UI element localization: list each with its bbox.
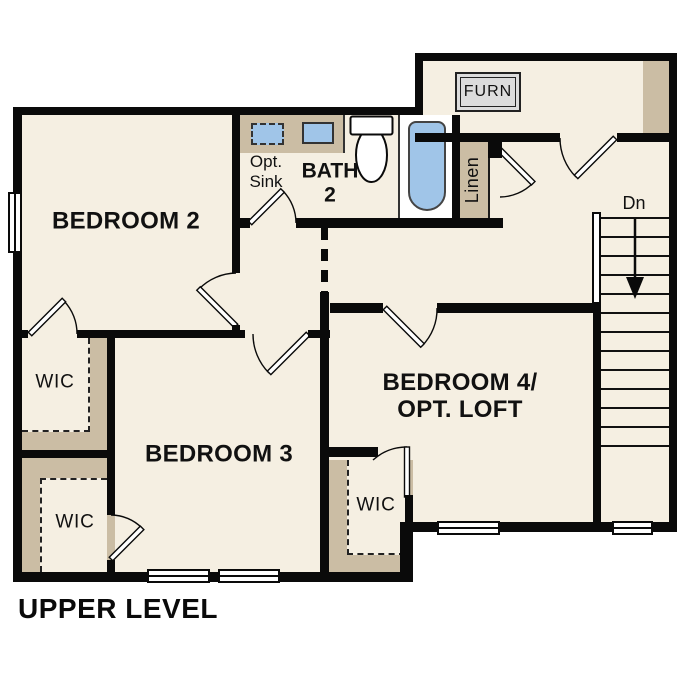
label-wic-bedroom3: WIC	[55, 511, 94, 532]
optional-sink	[251, 123, 284, 145]
wall-furnace-left	[415, 53, 423, 115]
room-label-bedroom4-line1: BEDROOM 4/	[382, 370, 537, 397]
tub-alcove	[398, 115, 452, 218]
room-label-bedroom3: BEDROOM 3	[145, 442, 293, 469]
window-bedroom2-left	[8, 192, 22, 253]
wall-linen-door-stub	[488, 140, 502, 158]
wall-bedroom3-bedroom4	[320, 292, 329, 577]
floor-plan: FURN	[0, 0, 687, 687]
wall-exterior-right	[669, 53, 677, 532]
wall-wic-divider	[13, 450, 115, 458]
wall-bedroom4-top-b	[437, 303, 593, 313]
wall-bedroom4-bottom-c	[653, 522, 677, 532]
wall-bath-bottom-a	[232, 218, 250, 228]
wall-exterior-bottom-b	[210, 572, 218, 582]
wall-wic-right-b	[107, 560, 115, 575]
label-wic-bedroom2: WIC	[35, 371, 74, 392]
room-label-bath2: BATH 2	[302, 159, 359, 206]
wall-bedroom2-right	[232, 115, 240, 273]
wall-bedroom3-top-b	[77, 330, 245, 338]
wall-furnace-bottom-a	[415, 133, 560, 142]
label-opt-sink-line1: Opt.	[249, 152, 282, 172]
room-label-bedroom4: BEDROOM 4/ OPT. LOFT	[382, 370, 537, 424]
wall-exterior-top-left	[13, 107, 423, 115]
wall-wic-bedroom4-top	[320, 447, 378, 457]
wall-bedroom3-top-a	[13, 330, 28, 338]
wall-furnace-bottom-b	[617, 133, 677, 142]
wall-bedroom4-top-a	[330, 303, 383, 313]
furnace-chase	[643, 61, 669, 134]
sink	[302, 122, 334, 144]
label-linen: Linen	[462, 157, 482, 204]
wall-exterior-bottom-a	[13, 572, 147, 582]
room-label-bedroom2: BEDROOM 2	[52, 209, 200, 236]
wall-bath-bottom-b	[296, 218, 503, 228]
wall-exterior-left	[13, 107, 22, 582]
stair-railing	[592, 212, 601, 304]
window-bedroom3-b	[218, 569, 280, 583]
wall-stairwell	[593, 303, 601, 522]
label-opt-sink-line2: Sink	[249, 172, 282, 192]
label-stairs-down: Dn	[622, 193, 645, 213]
wall-tub-linen-divider	[452, 115, 460, 228]
wall-exterior-top-right	[415, 53, 677, 61]
wall-wic-bedroom4-nub	[405, 495, 413, 522]
label-opt-sink: Opt. Sink	[249, 152, 282, 192]
furnace-unit: FURN	[455, 72, 521, 112]
room-label-bath2-line1: BATH	[302, 159, 359, 183]
label-wic-bedroom4: WIC	[356, 494, 395, 515]
window-bedroom3-a	[147, 569, 210, 583]
wall-wic-right-a	[107, 330, 115, 515]
window-stair-landing	[612, 521, 653, 535]
page-title: UPPER LEVEL	[18, 593, 218, 625]
room-label-bath2-line2: 2	[302, 183, 359, 207]
wall-bedroom4-bottom-b	[500, 522, 612, 532]
window-bedroom4	[437, 521, 500, 535]
furnace-unit-label: FURN	[460, 77, 516, 107]
room-label-bedroom4-line2: OPT. LOFT	[382, 397, 537, 424]
wall-exterior-bottom-c	[280, 572, 413, 582]
